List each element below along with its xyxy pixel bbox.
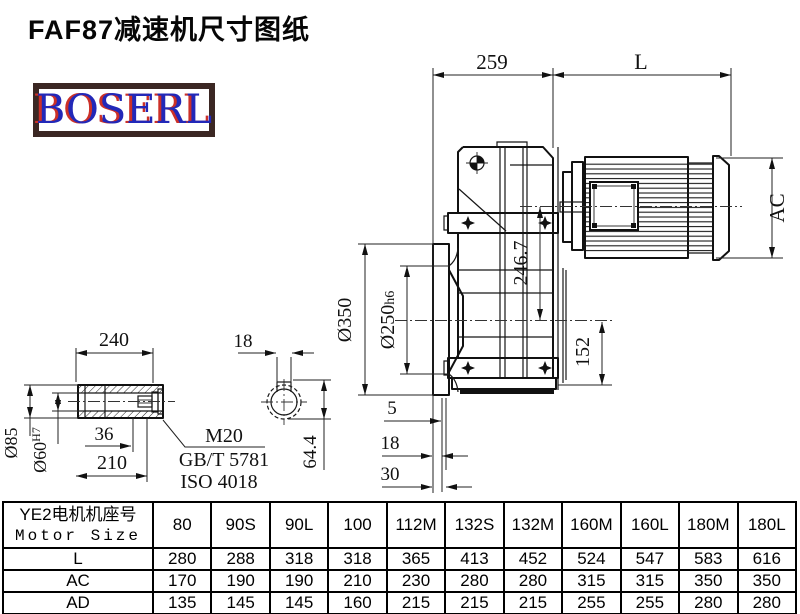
dim-350-label: Ø350 — [334, 298, 356, 342]
table-cell: 365 — [387, 548, 445, 570]
table-cell: 90L — [270, 502, 328, 548]
table-cell: 170 — [153, 570, 211, 592]
fan-cover — [713, 156, 729, 260]
table-cell: 90S — [211, 502, 269, 548]
dim-AC-label: AC — [765, 193, 789, 222]
table-cell: 350 — [738, 570, 796, 592]
crosshair-target-icon — [466, 152, 488, 174]
table-cell: 255 — [562, 592, 620, 614]
table-cell: 215 — [387, 592, 445, 614]
table-header-row: YE2电机机座号 Motor Size 80 90S 90L 100 112M … — [3, 502, 796, 548]
dim-5-label: 5 — [387, 398, 397, 419]
dim-246-label: 246.7 — [510, 241, 532, 286]
motor-size-table: YE2电机机座号 Motor Size 80 90S 90L 100 112M … — [2, 501, 797, 614]
dimensions-main: 259 L AC 246.7 152 Ø350 Ø250h6 — [334, 49, 789, 493]
table-cell: 160 — [328, 592, 386, 614]
table-cell: 132M — [504, 502, 562, 548]
target-diamond-markers — [461, 216, 552, 375]
table-cell: 524 — [562, 548, 620, 570]
dim-152-label: 152 — [572, 337, 594, 367]
table-cell: 210 — [328, 570, 386, 592]
shaft-detail: 240 Ø85 Ø60H7 36 210 M20 GB/T 5781 ISO — [1, 329, 269, 493]
motor-size-header-cell: YE2电机机座号 Motor Size — [3, 502, 153, 548]
dim-18-label: 18 — [381, 433, 400, 454]
dim-250h6-label: Ø250h6 — [377, 291, 399, 349]
table-cell: 280 — [679, 592, 737, 614]
table-cell: 145 — [211, 592, 269, 614]
dim-259-label: 259 — [476, 50, 508, 74]
table-cell: 230 — [387, 570, 445, 592]
table-cell: 452 — [504, 548, 562, 570]
dim-85-label: Ø85 — [1, 428, 21, 459]
table-cell: 255 — [621, 592, 679, 614]
row-label: AD — [3, 592, 153, 614]
row-label: AC — [3, 570, 153, 592]
table-cell: 135 — [153, 592, 211, 614]
dim-644-label: 64.4 — [300, 435, 321, 469]
table-cell: 215 — [504, 592, 562, 614]
table-cell: 160L — [621, 502, 679, 548]
table-cell: 80 — [153, 502, 211, 548]
table-cell: 280 — [504, 570, 562, 592]
motor-size-header-en: Motor Size — [4, 526, 152, 546]
table-cell: 190 — [211, 570, 269, 592]
table-cell: 112M — [387, 502, 445, 548]
gearbox-housing — [444, 142, 566, 394]
table-cell: 288 — [211, 548, 269, 570]
drawing-sheet: FAF87减速机尺寸图纸 BOSERL — [0, 0, 800, 614]
table-cell: 160M — [562, 502, 620, 548]
bolt-std-iso-label: ISO 4018 — [180, 471, 257, 493]
table-cell: 180L — [738, 502, 796, 548]
table-row-AC: AC 170 190 190 210 230 280 280 315 315 3… — [3, 570, 796, 592]
dim-key-18-label: 18 — [234, 331, 253, 352]
dim-36-label: 36 — [95, 424, 114, 445]
table-cell: 413 — [445, 548, 503, 570]
table-cell: 180M — [679, 502, 737, 548]
table-row-AD: AD 135 145 145 160 215 215 215 255 255 2… — [3, 592, 796, 614]
dim-240-label: 240 — [99, 329, 129, 351]
dimension-drawing: 259 L AC 246.7 152 Ø350 Ø250h6 — [0, 40, 800, 501]
row-label: L — [3, 548, 153, 570]
table-cell: 547 — [621, 548, 679, 570]
bolt-thread-label: M20 — [205, 425, 243, 447]
table-cell: 315 — [621, 570, 679, 592]
bolt-std-gb-label: GB/T 5781 — [179, 449, 269, 471]
motor-size-header-cn: YE2电机机座号 — [4, 504, 152, 525]
motor — [560, 156, 729, 260]
table-cell: 132S — [445, 502, 503, 548]
dim-60H7-label: Ø60H7 — [29, 427, 50, 473]
table-cell: 215 — [445, 592, 503, 614]
dim-30-label: 30 — [381, 464, 400, 485]
table-cell: 280 — [153, 548, 211, 570]
table-cell: 280 — [738, 592, 796, 614]
motor-nameplate — [590, 182, 638, 230]
dim-210-label: 210 — [97, 452, 127, 474]
table-row-L: L 280 288 318 318 365 413 452 524 547 58… — [3, 548, 796, 570]
table-cell: 318 — [270, 548, 328, 570]
table-cell: 616 — [738, 548, 796, 570]
table-cell: 190 — [270, 570, 328, 592]
table-cell: 280 — [445, 570, 503, 592]
dim-L-label: L — [634, 49, 647, 74]
table-cell: 145 — [270, 592, 328, 614]
table-cell: 350 — [679, 570, 737, 592]
table-cell: 315 — [562, 570, 620, 592]
table-cell: 583 — [679, 548, 737, 570]
table-cell: 100 — [328, 502, 386, 548]
table-cell: 318 — [328, 548, 386, 570]
